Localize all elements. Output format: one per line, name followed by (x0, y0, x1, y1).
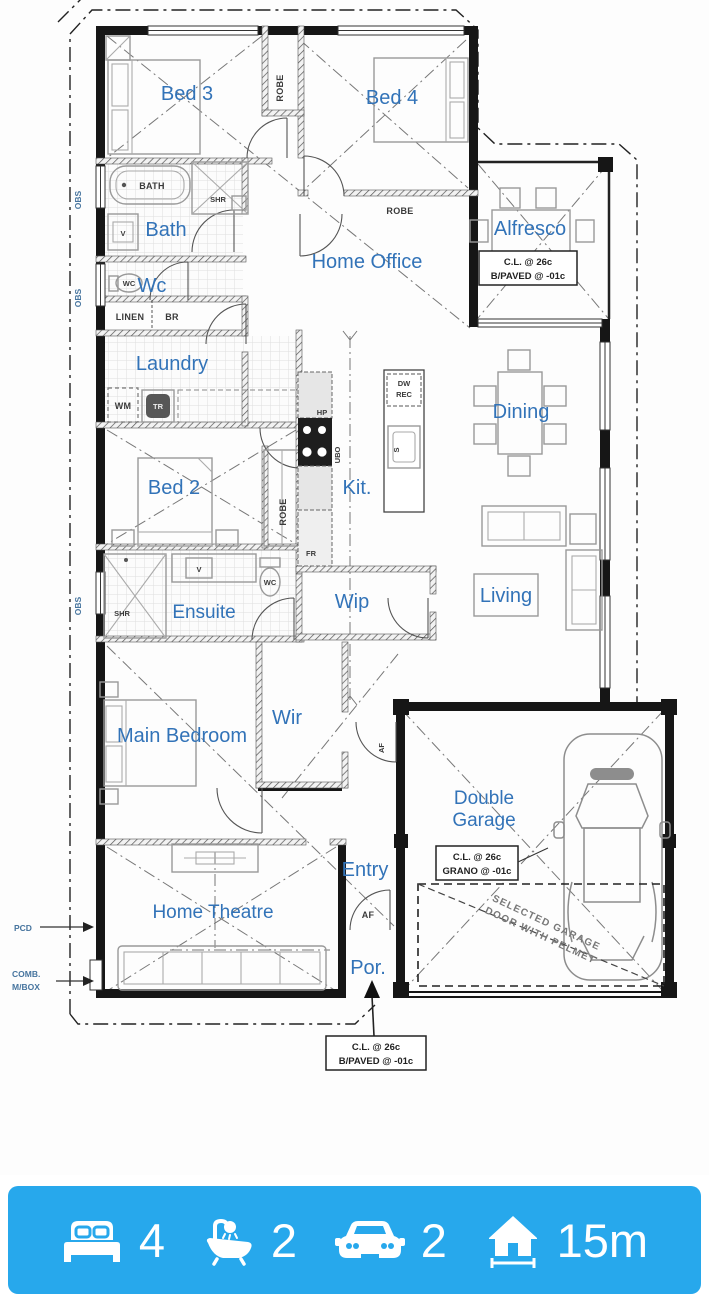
summary-frontage: 15m (485, 1212, 648, 1268)
porch-note-line1: C.L. @ 26c (352, 1042, 400, 1053)
kitchen-bench (298, 372, 332, 566)
room-label-bath: Bath (145, 219, 186, 241)
ubo-label: UBO (333, 447, 342, 464)
robe-label: ROBE (386, 206, 413, 216)
meter-box (90, 960, 102, 990)
window (338, 26, 464, 35)
pcd-label: PCD (14, 923, 32, 933)
summary-cars: 2 (335, 1216, 447, 1264)
summary-baths: 2 (203, 1214, 297, 1266)
porch-arrow (364, 980, 380, 998)
trough-label: TR (153, 402, 164, 411)
room-label-porch: Por. (350, 957, 386, 979)
alfresco-note-line2: B/PAVED @ -01c (491, 271, 565, 282)
mbox-label-line2: M/BOX (12, 982, 40, 992)
room-label-kitchen: Kit. (343, 477, 372, 499)
alfresco-note: C.L. @ 26c B/PAVED @ -01c (479, 251, 577, 285)
hotplate-label: HP (317, 408, 327, 417)
floor-plan: Bed 3 Bed 4 Bath Wc Laundry Home Office … (0, 0, 709, 1175)
room-label-wip: Wip (335, 591, 369, 613)
pcd-callout: PCD (14, 922, 94, 933)
bed2-robe (264, 450, 300, 546)
room-label-bed4: Bed 4 (366, 87, 418, 109)
wm-label: WM (115, 401, 132, 411)
sink-label: S (392, 447, 401, 452)
room-label-garage-line2: Garage (452, 810, 515, 831)
mbox-label-line1: COMB. (12, 969, 40, 979)
room-label-main-bedroom: Main Bedroom (117, 725, 247, 747)
obs-label: OBS (73, 596, 83, 615)
garage-note-line2: GRANO @ -01c (443, 866, 512, 877)
room-label-home-theatre: Home Theatre (152, 902, 273, 923)
fridge-label: FR (306, 549, 317, 558)
ensuite-shower-label: SHR (114, 609, 130, 618)
room-label-wc: Wc (138, 275, 167, 297)
bed-icon (61, 1216, 123, 1264)
living-furniture (474, 506, 602, 630)
window (600, 342, 610, 430)
car-plan (554, 734, 670, 980)
obs-label: OBS (73, 190, 83, 209)
bed2-furniture (112, 458, 238, 546)
beds-count: 4 (139, 1217, 165, 1264)
dw-label: DW (398, 379, 411, 388)
summary-beds: 4 (61, 1216, 165, 1264)
robe-label: ROBE (278, 498, 288, 525)
property-summary-bar: 4 2 2 (8, 1186, 701, 1294)
room-label-entry: Entry (342, 859, 389, 881)
alfresco-note-line1: C.L. @ 26c (504, 257, 552, 268)
porch-note-line2: B/PAVED @ -01c (339, 1056, 413, 1067)
home-icon (485, 1212, 541, 1268)
baths-count: 2 (271, 1217, 297, 1264)
car-icon (335, 1216, 405, 1264)
garage-note-line1: C.L. @ 26c (453, 852, 501, 863)
room-label-dining: Dining (493, 401, 550, 423)
linen-label: LINEN (116, 312, 145, 322)
robe-label: ROBE (275, 74, 285, 101)
garage-note: C.L. @ 26c GRANO @ -01c (436, 846, 548, 880)
vanity-label: V (120, 229, 125, 238)
obs-label: OBS (73, 288, 83, 307)
room-label-home-office: Home Office (312, 251, 423, 273)
garage-door-note: SELECTED GARAGE DOOR WITH PELMET (483, 893, 603, 967)
shower-label: SHR (210, 195, 226, 204)
window (148, 26, 258, 35)
broom-label: BR (165, 312, 179, 322)
garage-door-af-label: AF (377, 743, 386, 753)
entry-af-label: AF (362, 910, 375, 920)
toilet-label: WC (123, 279, 136, 288)
room-label-bed3: Bed 3 (161, 83, 213, 105)
room-label-garage-line1: Double (454, 788, 514, 809)
window-obs (96, 264, 105, 306)
room-label-ensuite: Ensuite (172, 602, 235, 623)
sliding-door (478, 319, 602, 327)
room-label-wir: Wir (272, 707, 302, 729)
room-label-bed2: Bed 2 (148, 477, 200, 499)
ensuite-vanity-label: V (196, 565, 201, 574)
bathtub-label: BATH (139, 181, 165, 191)
cars-count: 2 (421, 1217, 447, 1264)
room-label-laundry: Laundry (136, 353, 208, 375)
mbox-callout: COMB. M/BOX (12, 969, 94, 992)
room-label-alfresco: Alfresco (494, 218, 566, 240)
room-label-living: Living (480, 585, 532, 607)
window (600, 468, 610, 560)
bath-icon (203, 1214, 255, 1266)
ensuite-toilet-label: WC (264, 578, 277, 587)
window-obs (96, 166, 105, 208)
rec-label: REC (396, 390, 412, 399)
frontage-value: 15m (557, 1217, 648, 1264)
